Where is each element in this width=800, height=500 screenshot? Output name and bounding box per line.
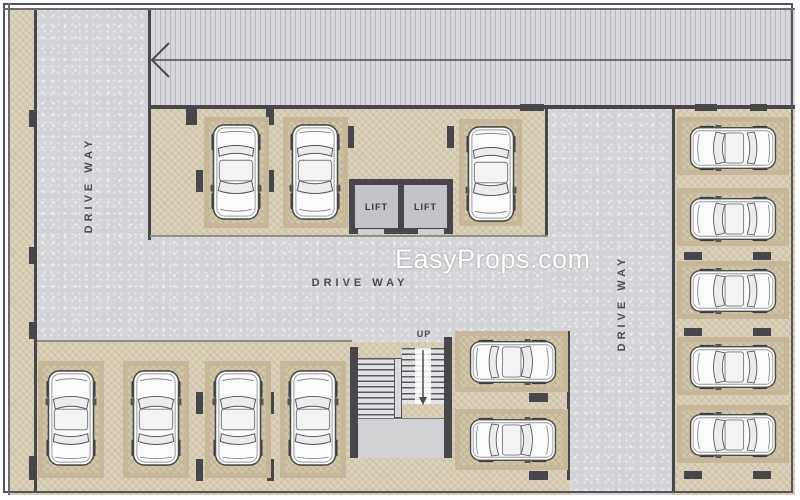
plan-border [3, 3, 793, 493]
plan-border-inner-top [3, 8, 795, 10]
plan-border-inner-left [8, 3, 10, 495]
parking-floor-plan: LIFT LIFT UP DRIVE WAY DRIVE WAY DRIVE W… [0, 0, 800, 500]
